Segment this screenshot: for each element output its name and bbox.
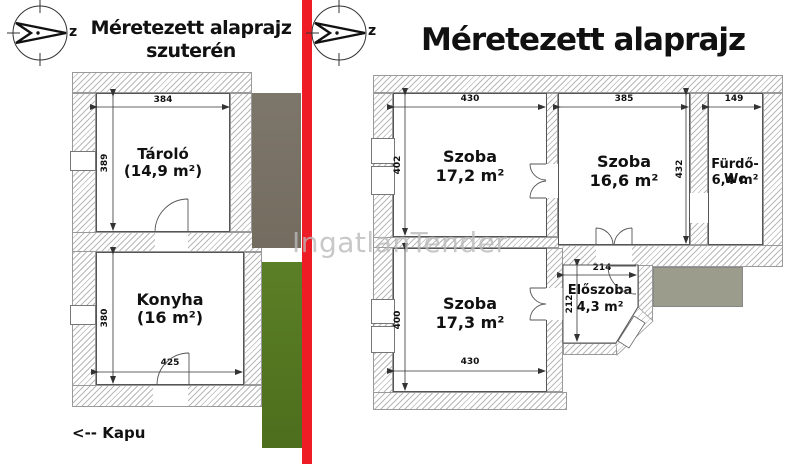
room-szoba1-name: Szoba: [400, 148, 540, 166]
right-window-2: [371, 166, 395, 195]
dim-furdo-width: 149: [714, 94, 754, 104]
dim-szoba1-width: 430: [450, 94, 490, 104]
furdo-door-gap: [690, 193, 708, 223]
room-konyha-name: Konyha: [110, 291, 230, 309]
dim-taro-height: 389: [100, 143, 110, 183]
gate-label: <-- Kapu: [72, 424, 145, 442]
compass-icon-right: [306, 0, 366, 66]
photo-strip-brown: [252, 93, 301, 248]
left-wall-right-upper: [230, 93, 252, 232]
wall-between-szoba4-eloszoba: [546, 248, 563, 392]
room-tarolo-area: (14,9 m²): [103, 163, 223, 180]
dim-taro-width: 384: [143, 95, 183, 105]
dim-konyha-height: 380: [100, 298, 110, 338]
dim-konyha-width: 425: [150, 358, 190, 368]
watermark: IngatlanTender: [292, 226, 507, 259]
room-konyha-area: (16 m²): [110, 309, 230, 327]
room-szoba1-area: 17,2 m²: [400, 167, 540, 185]
photo-strip-garden: [262, 262, 302, 448]
compass-icon-left: [7, 0, 67, 66]
dim-szoba1-height: 402: [393, 145, 403, 185]
dim-eloszoba-height: 212: [565, 284, 575, 324]
left-window-lower: [70, 305, 96, 325]
tarolo-door-gap: [155, 233, 188, 251]
room-szoba3-area: 17,3 m²: [400, 314, 540, 332]
dim-szoba2-width: 385: [604, 94, 644, 104]
floor-plan-canvas: Méretezett alaprajz szuterén z Tároló (1…: [0, 0, 800, 464]
room-szoba2-area: 16,6 m²: [558, 172, 690, 190]
room-szoba3-name: Szoba: [400, 295, 540, 313]
right-wall-top: [373, 75, 783, 93]
left-wall-right-lower: [244, 252, 262, 385]
room-szoba2-name: Szoba: [558, 153, 690, 171]
right-window-1: [371, 138, 395, 164]
left-wall-top: [72, 72, 252, 93]
eloszoba-wall-right: [638, 265, 653, 321]
right-window-4: [371, 326, 395, 353]
right-window-3: [371, 299, 395, 324]
left-plan-title-line2: szuterén: [78, 40, 304, 63]
left-plan-title: Méretezett alaprajz szuterén: [78, 17, 304, 63]
room-tarolo-name: Tároló: [103, 146, 223, 163]
eloszoba-wall-bottom: [563, 343, 617, 355]
left-plan-title-line1: Méretezett alaprajz: [78, 17, 304, 40]
szoba3-door-gap: [546, 288, 563, 320]
room-furdo-area: 6,4 m²: [703, 174, 767, 189]
dim-szoba3-width: 430: [450, 357, 490, 367]
dim-szoba3-height: 400: [393, 300, 403, 340]
terrace-area: [653, 267, 743, 307]
left-compass-label: z: [69, 24, 77, 40]
right-compass-label: z: [368, 23, 376, 39]
right-wall-bottom: [373, 392, 567, 410]
szoba1-door-gap: [546, 164, 558, 198]
konyha-door-gap: [153, 386, 188, 406]
left-window-upper: [70, 151, 96, 171]
dim-eloszoba-width: 214: [582, 263, 622, 273]
dim-szoba2-height: 432: [675, 149, 685, 189]
right-plan-title: Méretezett alaprajz: [383, 20, 783, 60]
